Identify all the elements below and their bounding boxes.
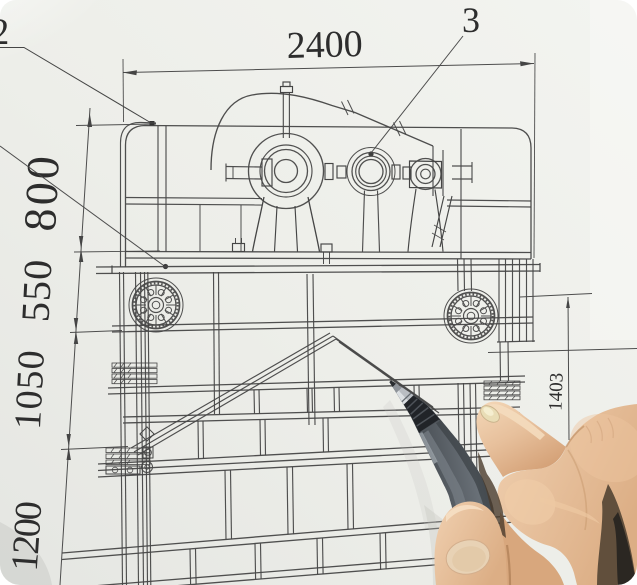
svg-text:3: 3 [462, 0, 480, 40]
svg-text:1200: 1200 [4, 501, 51, 573]
svg-text:2400: 2400 [286, 23, 363, 67]
svg-text:1403: 1403 [545, 372, 567, 411]
svg-text:800: 800 [14, 152, 69, 233]
svg-text:550: 550 [12, 258, 60, 323]
svg-text:1050: 1050 [7, 348, 53, 430]
svg-text:2: 2 [0, 12, 9, 53]
